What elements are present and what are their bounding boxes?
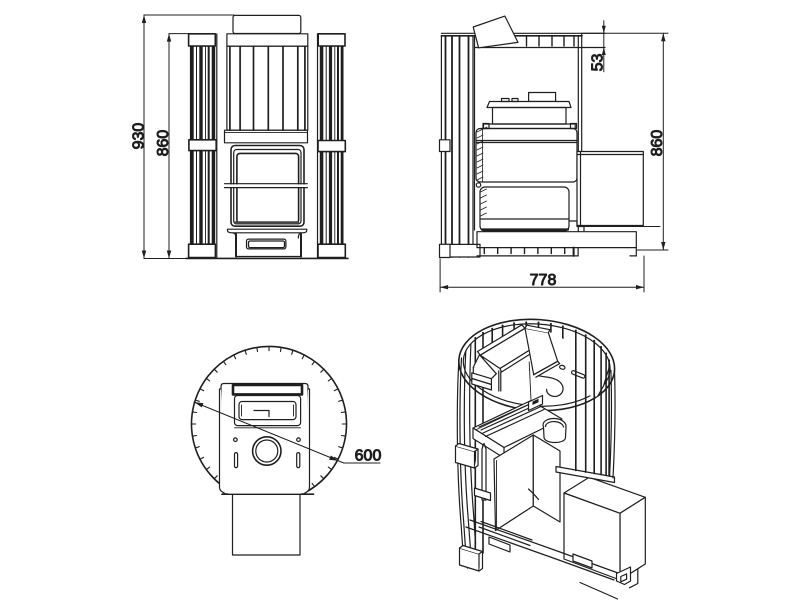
- svg-text:778: 778: [530, 272, 557, 289]
- svg-text:930: 930: [131, 123, 148, 150]
- svg-text:860: 860: [649, 130, 666, 157]
- svg-text:860: 860: [155, 130, 172, 157]
- svg-text:600: 600: [355, 448, 382, 465]
- svg-text:53: 53: [590, 54, 607, 72]
